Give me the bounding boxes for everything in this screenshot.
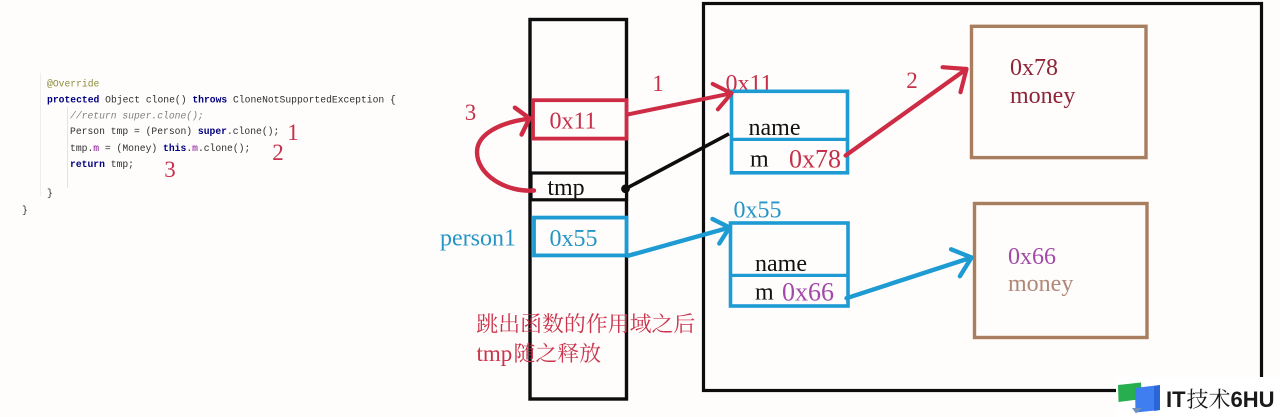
svg-text:m: m [750,147,769,173]
svg-text:2: 2 [272,140,284,165]
svg-text:0x66: 0x66 [1008,244,1056,270]
svg-text:person1: person1 [440,226,516,252]
svg-text:Person tmp = (Person) super.cl: Person tmp = (Person) super.clone(); [70,126,279,137]
svg-text:name: name [749,115,801,141]
svg-text:m: m [755,280,774,306]
svg-text:protected Object clone() throw: protected Object clone() throws CloneNot… [47,95,396,106]
svg-text:}: } [47,188,53,199]
svg-text:0x11: 0x11 [549,109,596,135]
svg-text:tmp.m = (Money) this.m.clone(): tmp.m = (Money) this.m.clone(); [70,143,250,154]
svg-text:IT: IT [1166,387,1186,412]
svg-text:tmp: tmp [477,341,513,366]
svg-text:return tmp;: return tmp; [70,159,134,170]
svg-text:name: name [755,251,807,277]
svg-text:0x78: 0x78 [1010,55,1058,81]
svg-text:2: 2 [906,68,918,93]
svg-text:6HU: 6HU [1231,387,1275,412]
svg-text:}: } [22,205,28,216]
svg-text:money: money [1010,83,1075,109]
svg-text:0x78: 0x78 [789,145,841,174]
svg-text:0x66: 0x66 [782,278,834,307]
svg-text:0x55: 0x55 [550,226,598,252]
svg-text:1: 1 [287,120,299,145]
svg-text:@Override: @Override [47,79,100,90]
svg-text:3: 3 [164,157,176,182]
svg-text:3: 3 [465,100,477,125]
svg-text:0x55: 0x55 [734,198,782,224]
svg-text:money: money [1008,271,1073,297]
svg-text:1: 1 [652,71,664,96]
svg-text:tmp: tmp [547,175,584,201]
svg-text://return super.clone();: //return super.clone(); [70,110,204,121]
